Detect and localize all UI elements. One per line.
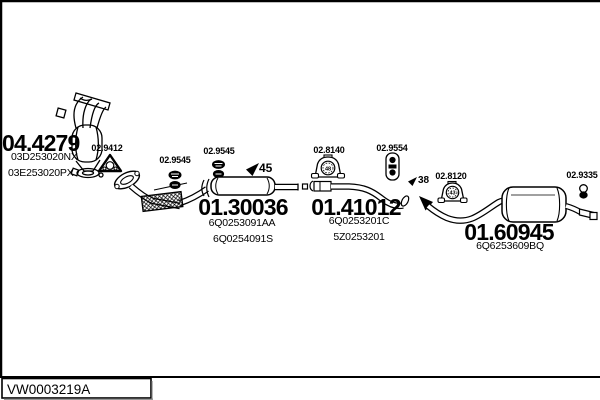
hanger-mid-ref-label: 02.9554	[376, 144, 407, 153]
hanger-mid-icon	[386, 153, 399, 180]
rear-silencer-oem1-label: 6Q6253609BQ	[476, 241, 544, 252]
catalyst-oem1-label: 03D253020NX	[11, 152, 78, 163]
diameter-45-arrow-icon	[246, 163, 259, 176]
gasket-ref-label: 02.9412	[91, 144, 122, 153]
clamp-front-ref-label: 02.9545	[159, 156, 190, 165]
downpipe-drawing	[112, 167, 207, 211]
mount-48-ref-label: 02.8140	[313, 146, 344, 155]
centre-silencer-ref-label: 01.30036	[198, 196, 288, 219]
clamp-front-icon	[169, 171, 182, 189]
mount-48-icon: 48	[312, 155, 345, 178]
mount-48-size-text: 48	[325, 166, 331, 172]
hanger-rear-icon	[579, 185, 587, 199]
drawing-code-label: VW0003219A	[7, 382, 90, 397]
centre-silencer-oem2-label: 6Q0254091S	[213, 234, 273, 245]
mount-43-ref-label: 02.8120	[435, 172, 466, 181]
clamp-mid-icon	[212, 160, 225, 178]
clamp-mid-ref-label: 02.9545	[203, 147, 234, 156]
diameter-38-arrow-icon	[408, 177, 417, 186]
diameter-38-label: 38	[418, 176, 429, 186]
mount-43-icon: 43	[438, 182, 467, 203]
centre-silencer-oem1-label: 6Q0253091AA	[209, 218, 276, 229]
diagram-line-art: 48	[0, 0, 600, 400]
hanger-rear-ref-label: 02.9335	[566, 171, 597, 180]
gasket-icon	[99, 155, 121, 171]
exhaust-parts-diagram: 48	[0, 0, 600, 400]
centre-pipe-oem2-label: 5Z0253201	[333, 232, 384, 243]
centre-pipe-oem1-label: 6Q0253201C	[329, 216, 389, 227]
diameter-45-label: 45	[259, 162, 272, 174]
catalyst-oem2-label: 03E253020PX	[8, 168, 74, 179]
mount-43-size-text: 43	[449, 191, 455, 197]
